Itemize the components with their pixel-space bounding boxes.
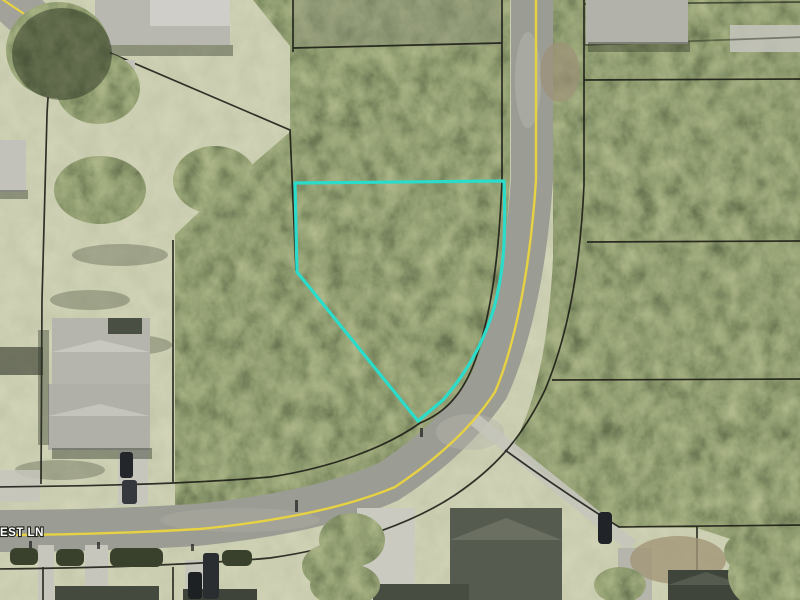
house-top-right	[586, 0, 690, 52]
house-left-edge	[0, 140, 28, 199]
street-name-label: EST LN	[0, 527, 44, 539]
aerial-map-canvas[interactable]: EST LN	[0, 0, 800, 600]
cleared-lot-area	[293, 0, 503, 46]
aerial-imagery: EST LN	[0, 0, 800, 600]
dirt-shoulder-patch	[540, 42, 580, 102]
large-tree-shadow	[12, 8, 112, 100]
